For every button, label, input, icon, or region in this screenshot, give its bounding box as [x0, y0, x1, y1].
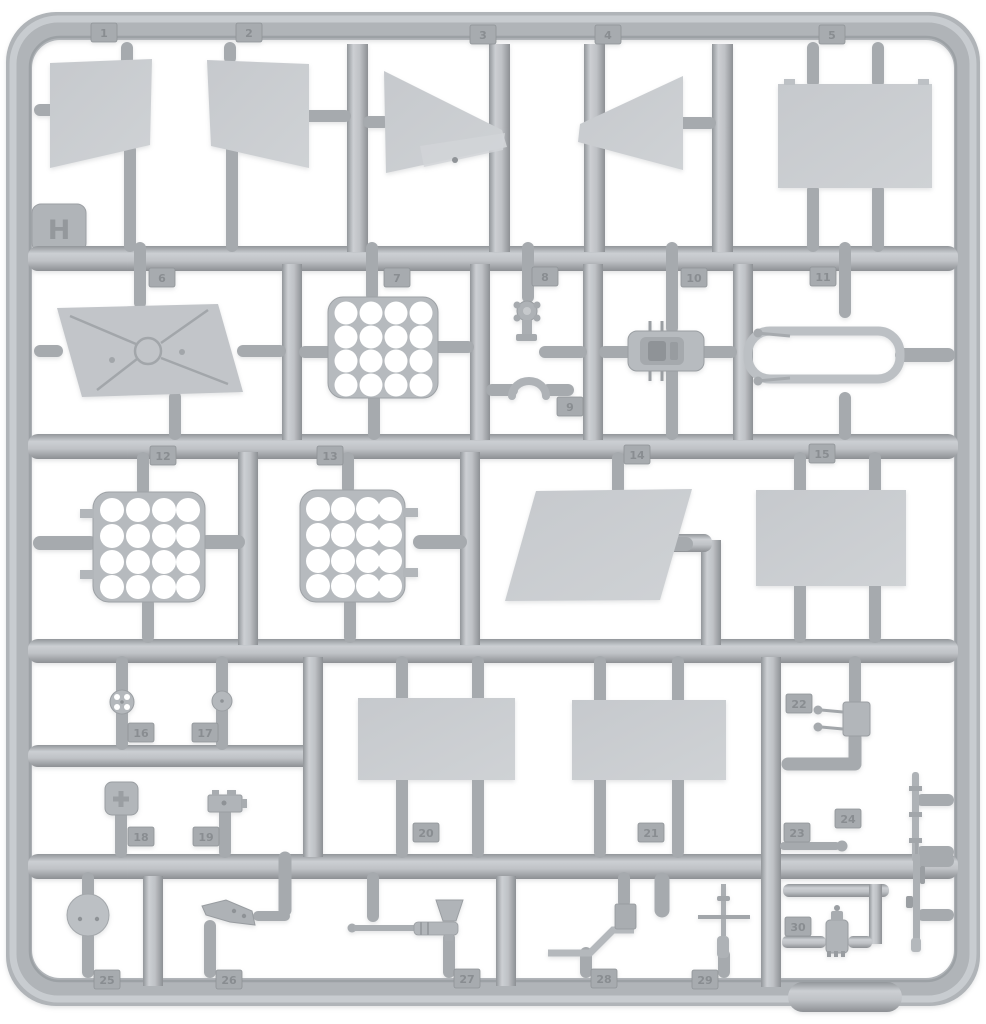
part-tag: 5 [819, 25, 845, 44]
part-tag: 1 [91, 23, 117, 42]
part-tag-number: 11 [815, 271, 830, 284]
part-tag: 11 [810, 267, 836, 286]
part-tag: 18 [128, 827, 154, 846]
part-29-crossbar-rod [698, 884, 750, 958]
runner-h4 [28, 854, 958, 879]
part-tag-number: 24 [840, 813, 856, 826]
part-27-barrel-funnel [348, 900, 464, 941]
part-tag-number: 28 [596, 973, 611, 986]
part-tag: 25 [94, 970, 120, 989]
part-25-round-lid [67, 894, 109, 936]
runner-v-right-col [761, 657, 781, 987]
part-tag-number: 17 [197, 727, 212, 740]
part-tag: 28 [591, 969, 617, 988]
part-tag-number: 20 [418, 827, 434, 840]
runner-v-row3-a [238, 452, 258, 645]
part-tag: 6 [149, 268, 175, 287]
part-tag: 19 [193, 827, 219, 846]
part-12-perforated-plate [80, 492, 205, 602]
part-2-flap-panel [207, 60, 309, 168]
part-tag: 23 [784, 823, 810, 842]
part-18-cross-pad [105, 782, 138, 815]
runner-v-row4-a [303, 657, 323, 857]
runner-v-row5-b [496, 876, 516, 986]
part-tag-number: 3 [479, 29, 487, 42]
runner-left-sub [28, 745, 320, 767]
part-tag-number: 27 [459, 973, 474, 986]
part-tag-number: 13 [322, 450, 337, 463]
runner-v-row2-b [470, 264, 490, 440]
part-tag-number: 15 [814, 448, 829, 461]
part-tag: 27 [454, 969, 480, 988]
part-tag-number: 8 [541, 271, 549, 284]
photo-of-model-kit-sprue: H [0, 0, 986, 1024]
part-tag-number: 18 [133, 831, 148, 844]
part-tag: 12 [150, 446, 176, 465]
part-tag: 22 [786, 694, 812, 713]
part-tag: 10 [681, 268, 707, 287]
part-23-pin [837, 841, 848, 852]
part-tag: 4 [595, 25, 621, 44]
part-tag: 13 [317, 446, 343, 465]
part-tag: 21 [638, 823, 664, 842]
part-tag: 26 [216, 970, 242, 989]
part-tag-number: 2 [245, 27, 253, 40]
part-tag: 14 [624, 445, 650, 464]
part-6-hatch-panel [57, 304, 243, 397]
part-19-bracket-box [208, 790, 247, 812]
part-tag-number: 21 [643, 827, 658, 840]
part-tag: 7 [384, 268, 410, 287]
part-15-rect-panel [756, 490, 906, 586]
part-tag: 9 [557, 397, 583, 416]
runner-elbow-p14-v [701, 540, 721, 645]
runner-v-row3-b [460, 452, 480, 645]
part-14-trapezoid-panel [505, 489, 692, 601]
part-17-small-disc [212, 691, 232, 711]
part-tag-number: 7 [393, 272, 401, 285]
part-tag: 20 [413, 823, 439, 842]
part-21-rect-panel [572, 700, 726, 780]
runner-bottom-bulge [788, 982, 902, 1012]
part-tag-number: 16 [133, 727, 149, 740]
part-tag-number: 9 [566, 401, 574, 414]
part-16-small-wheel [110, 690, 134, 714]
runner-v-row5-a [143, 876, 163, 986]
part-tag-number: 1 [100, 27, 108, 40]
part-13-perforated-plate [300, 490, 418, 602]
part-tag: 24 [835, 809, 861, 828]
part-tag-number: 23 [789, 827, 804, 840]
part-3-wedge-panel [384, 71, 507, 173]
part-1-flap-panel [50, 59, 152, 168]
part-tag: 15 [809, 444, 835, 463]
part-8-pump-cap [514, 301, 541, 341]
part-tag-number: 19 [198, 831, 213, 844]
part-tag: 8 [532, 267, 558, 286]
runner-v-row1-a [347, 44, 368, 252]
part-7-perforated-plate [328, 297, 438, 398]
part-tag: 16 [128, 723, 154, 742]
part-tag-number: 26 [221, 974, 237, 987]
part-9-clamp [512, 381, 546, 396]
runner-v-row1-d [712, 44, 733, 252]
part-tag: 17 [192, 723, 218, 742]
part-tag-number: 22 [791, 698, 806, 711]
runner-h3 [28, 639, 958, 663]
part-tag-number: 5 [828, 29, 836, 42]
part-28-bent-strip [548, 904, 636, 953]
sprue-letter-tab: H [32, 204, 86, 252]
part-tag: 29 [692, 970, 718, 989]
part-tag-number: 4 [604, 29, 612, 42]
part-20-rect-panel [358, 698, 515, 780]
part-tag: 30 [785, 917, 811, 936]
sprue-letter: H [48, 215, 71, 246]
part-28-mount-block [615, 904, 636, 929]
part-tag: 3 [470, 25, 496, 44]
part-tag-number: 25 [99, 974, 114, 987]
part-tag: 2 [236, 23, 262, 42]
part-tag-number: 12 [155, 450, 170, 463]
part-tag-number: 6 [158, 272, 166, 285]
part-11-frame-loop [748, 329, 900, 386]
part-tag-number: 14 [629, 449, 645, 462]
part-5-rect-plate [778, 79, 932, 188]
part-22-pin-bracket [814, 702, 871, 736]
part-tag-number: 30 [790, 921, 806, 934]
part-tag-number: 29 [697, 974, 712, 987]
part-tag-number: 10 [686, 272, 702, 285]
